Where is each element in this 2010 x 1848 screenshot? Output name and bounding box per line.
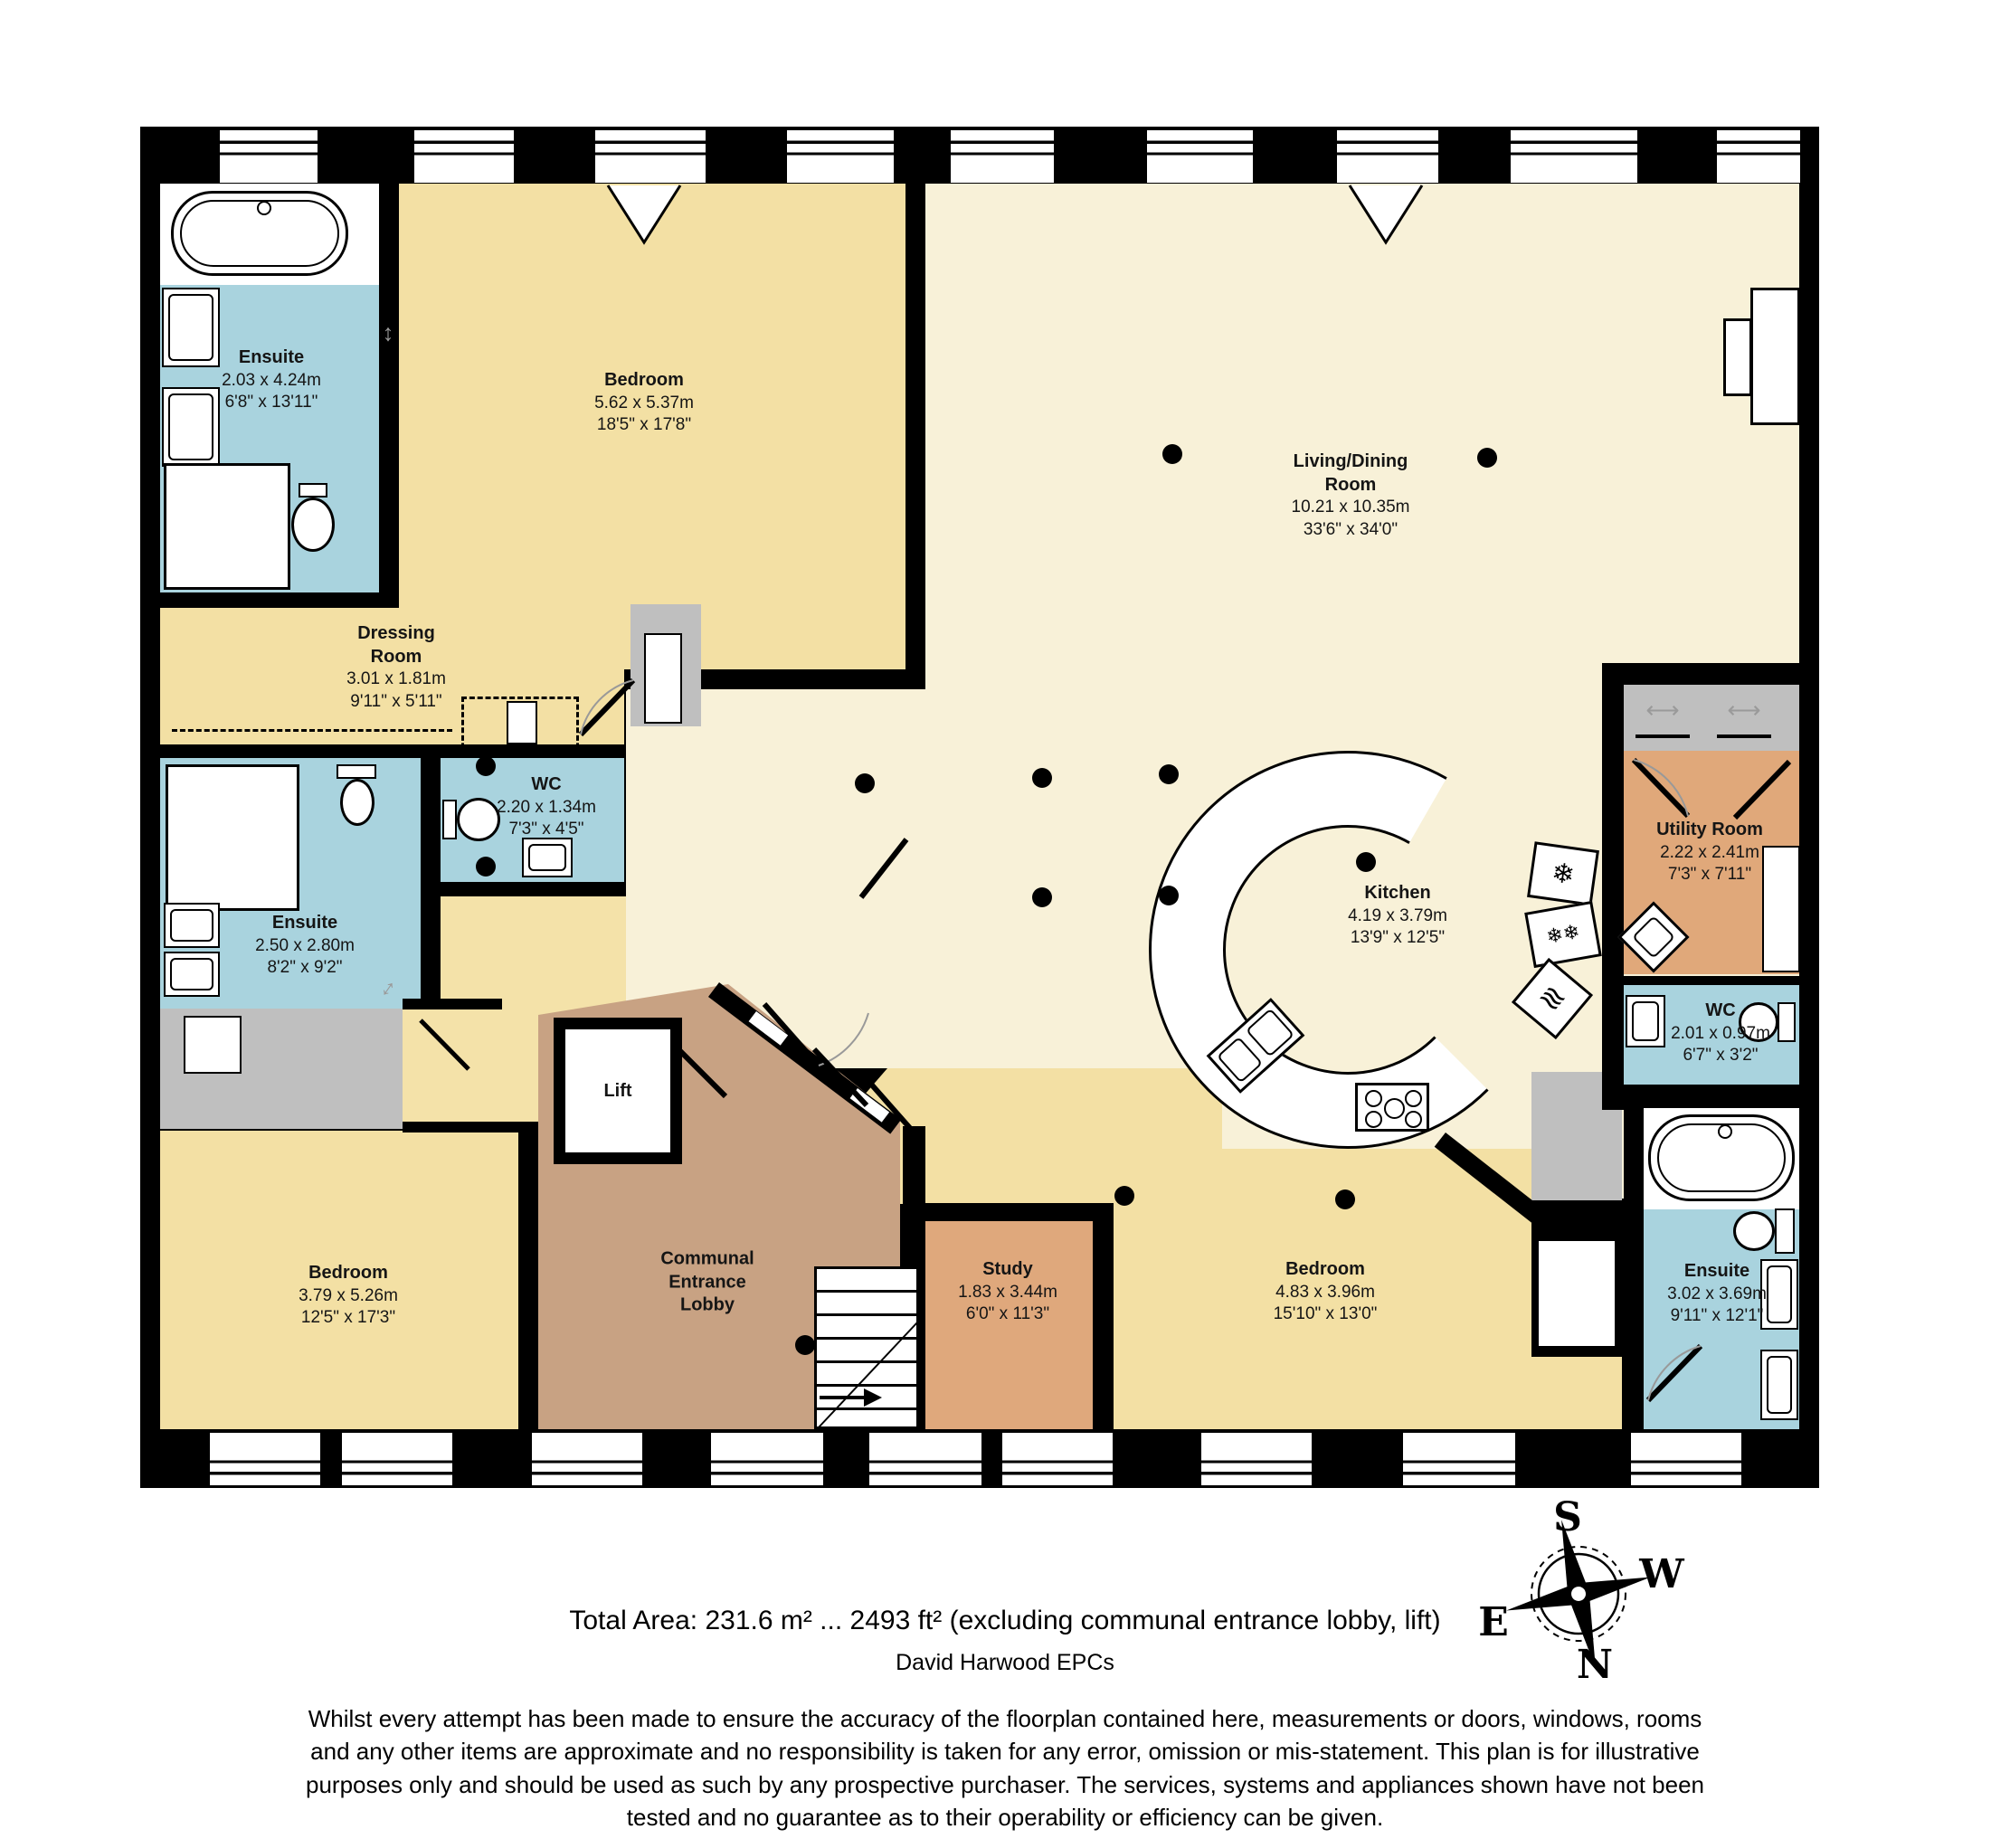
compass-south: S <box>1553 1494 1582 1540</box>
fireplace <box>1750 288 1800 425</box>
window <box>1002 1433 1113 1485</box>
room-name: Dressing Room <box>342 622 450 668</box>
column <box>476 857 496 877</box>
shower <box>166 764 299 911</box>
room-name: Bedroom <box>554 369 735 393</box>
room-dims-m: 3.02 x 3.69m <box>1652 1283 1783 1304</box>
room-label-ensuite-1: Ensuite 2.03 x 4.24m 6'8" x 13'11" <box>199 346 344 413</box>
wardrobe-rail <box>507 701 537 744</box>
room-name: Ensuite <box>199 346 344 370</box>
room-label-bedroom-2: Bedroom 3.79 x 5.26m 12'5" x 17'3" <box>267 1262 430 1329</box>
room-label-study: Study 1.83 x 3.44m 6'0" x 11'3" <box>935 1258 1080 1325</box>
room-label-wc-1: WC 2.20 x 1.34m 7'3" x 4'5" <box>479 773 614 840</box>
room-dims-ft: 6'7" x 3'2" <box>1644 1045 1797 1066</box>
room-name: Study <box>935 1258 1080 1282</box>
wall <box>1622 976 1799 985</box>
room-label-lift: Lift <box>577 1080 659 1104</box>
room-name: WC <box>479 773 614 797</box>
room-label-ensuite-2: Ensuite 2.50 x 2.80m 8'2" x 9'2" <box>232 912 377 979</box>
room-dims-m: 4.19 x 3.79m <box>1325 905 1470 926</box>
window <box>1201 1433 1312 1485</box>
freezer-icon: ❄❄ <box>1524 901 1602 968</box>
window <box>787 130 894 183</box>
column <box>1477 448 1497 468</box>
room-label-bedroom-1: Bedroom 5.62 x 5.37m 18'5" x 17'8" <box>554 369 735 436</box>
compass-west: W <box>1638 1551 1684 1597</box>
room-label-kitchen: Kitchen 4.19 x 3.79m 13'9" x 12'5" <box>1325 882 1470 949</box>
window <box>1403 1433 1515 1485</box>
staircase <box>814 1266 919 1429</box>
floorplan-canvas: ❄ ❄❄ ≋ ⟷ ⟷ <box>0 0 2010 1848</box>
wall <box>1602 663 1799 685</box>
fireplace-hearth <box>1723 318 1752 396</box>
room-name: Communal Entrance Lobby <box>651 1248 764 1318</box>
column <box>1032 887 1052 907</box>
sliding-arrow-icon: ⟷ <box>1645 697 1679 725</box>
room-dims-ft: 8'2" x 9'2" <box>232 957 377 979</box>
wall <box>1602 663 1624 1110</box>
room-dims-m: 5.62 x 5.37m <box>554 392 735 413</box>
room-label-bedroom-3: Bedroom 4.83 x 3.96m 15'10" x 13'0" <box>1235 1258 1416 1325</box>
room-dims-m: 2.20 x 1.34m <box>479 796 614 818</box>
room-dims-m: 2.22 x 2.41m <box>1637 841 1782 863</box>
toilet-tank <box>299 483 327 498</box>
shower <box>164 463 290 590</box>
toilet-tank <box>442 800 457 839</box>
column <box>1114 1186 1134 1206</box>
column <box>1032 768 1052 788</box>
closet-door <box>184 1016 242 1074</box>
wall <box>905 1203 1114 1221</box>
wall <box>403 1122 538 1132</box>
sliding-arrow-icon: ⟷ <box>1727 697 1760 725</box>
room-dims-ft: 33'6" x 34'0" <box>1272 519 1430 541</box>
toilet <box>1733 1211 1775 1251</box>
room-dims-m: 10.21 x 10.35m <box>1272 497 1430 518</box>
window <box>1631 1433 1741 1485</box>
room-bedroom-3-floor <box>1531 1357 1622 1429</box>
column <box>1162 444 1182 464</box>
room-dims-ft: 6'0" x 11'3" <box>935 1303 1080 1325</box>
room-name: Ensuite <box>1652 1260 1783 1284</box>
wardrobe-dashed <box>172 729 452 732</box>
window <box>951 130 1054 183</box>
column <box>855 773 875 793</box>
shower <box>1535 1237 1618 1350</box>
sink <box>164 903 220 948</box>
window <box>210 1433 320 1485</box>
sink <box>522 838 573 877</box>
window <box>1717 130 1800 183</box>
room-dims-ft: 15'10" x 13'0" <box>1235 1303 1416 1325</box>
wall <box>441 882 626 896</box>
room-name: Bedroom <box>267 1262 430 1285</box>
room-dims-m: 3.01 x 1.81m <box>342 668 450 690</box>
counter-line <box>1717 734 1771 738</box>
bathtub <box>171 191 348 276</box>
window <box>220 130 318 183</box>
sink <box>1760 1350 1798 1420</box>
hob <box>1355 1083 1429 1132</box>
room-label-utility: Utility Room 2.22 x 2.41m 7'3" x 7'11" <box>1637 819 1782 886</box>
wall <box>1093 1203 1114 1429</box>
room-dims-m: 3.79 x 5.26m <box>267 1284 430 1306</box>
window <box>869 1433 981 1485</box>
window <box>711 1433 823 1485</box>
room-label-ensuite-3: Ensuite 3.02 x 3.69m 9'11" x 12'1" <box>1652 1260 1783 1327</box>
room-dims-ft: 9'11" x 12'1" <box>1652 1305 1783 1327</box>
toilet <box>340 779 375 826</box>
wall <box>403 999 502 1009</box>
room-name: Lift <box>577 1080 659 1104</box>
toilet-tank <box>1775 1208 1795 1254</box>
room-dims-ft: 7'3" x 4'5" <box>479 819 614 840</box>
room-name: Utility Room <box>1637 819 1782 842</box>
fridge-icon: ❄ <box>1527 841 1599 905</box>
room-dims-m: 1.83 x 3.44m <box>935 1281 1080 1303</box>
column <box>1356 852 1376 872</box>
window <box>342 1433 452 1485</box>
room-label-wc-2: WC 2.01 x 0.97m 6'7" x 3'2" <box>1644 1000 1797 1066</box>
column <box>1159 886 1179 905</box>
sink <box>164 952 220 997</box>
compass-rose: S W E N <box>1461 1493 1696 1710</box>
wall <box>1624 1090 1644 1429</box>
room-dims-m: 2.50 x 2.80m <box>232 934 377 956</box>
room-label-lobby: Communal Entrance Lobby <box>651 1248 764 1318</box>
room-name: Kitchen <box>1325 882 1470 905</box>
door-swing-icon: ↕ <box>383 319 394 347</box>
room-dims-ft: 7'3" x 7'11" <box>1637 864 1782 886</box>
room-dims-m: 2.03 x 4.24m <box>199 369 344 391</box>
column <box>1335 1189 1355 1209</box>
room-dims-ft: 6'8" x 13'11" <box>199 392 344 413</box>
corridor-floor <box>441 896 626 1009</box>
closet-door <box>644 633 682 724</box>
window <box>1337 130 1438 183</box>
room-dims-ft: 13'9" x 12'5" <box>1325 927 1470 949</box>
bathtub <box>1648 1114 1795 1201</box>
window <box>1147 130 1253 183</box>
room-dims-ft: 18'5" x 17'8" <box>554 414 735 436</box>
toilet <box>291 498 335 552</box>
room-dims-m: 2.01 x 0.97m <box>1644 1022 1797 1044</box>
disclaimer-text: Whilst every attempt has been made to en… <box>299 1702 1711 1834</box>
window <box>414 130 514 183</box>
window <box>532 1433 642 1485</box>
column <box>1159 764 1179 784</box>
window <box>1511 130 1637 183</box>
room-label-dressing: Dressing Room 3.01 x 1.81m 9'11" x 5'11" <box>342 622 450 713</box>
counter-line <box>1635 734 1690 738</box>
room-dims-m: 4.83 x 3.96m <box>1235 1281 1416 1303</box>
room-dims-ft: 12'5" x 17'3" <box>267 1307 430 1329</box>
credit-text: David Harwood EPCs <box>0 1650 2010 1676</box>
total-area-text: Total Area: 231.6 m² ... 2493 ft² (exclu… <box>0 1606 2010 1636</box>
toilet-tank <box>337 764 376 779</box>
room-name: WC <box>1644 1000 1797 1023</box>
column <box>795 1335 815 1355</box>
room-name: Living/Dining Room <box>1272 450 1430 497</box>
room-name: Bedroom <box>1235 1258 1416 1282</box>
wall <box>1622 1085 1799 1108</box>
window <box>595 130 706 183</box>
room-dims-ft: 9'11" x 5'11" <box>342 691 450 713</box>
room-label-living-dining: Living/Dining Room 10.21 x 10.35m 33'6" … <box>1272 450 1430 541</box>
room-name: Ensuite <box>232 912 377 935</box>
